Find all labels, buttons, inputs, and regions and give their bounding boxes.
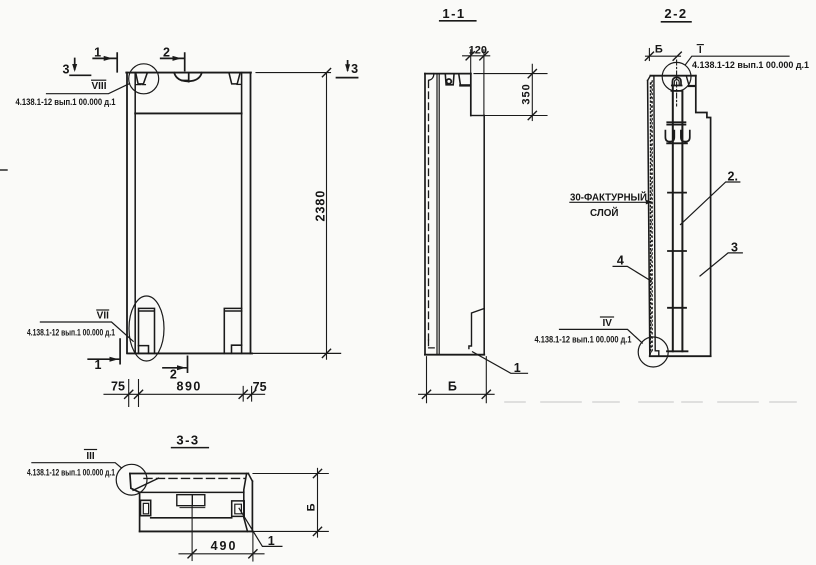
svg-text:4.138.1-12 вып.1 00.000 д.1: 4.138.1-12 вып.1 00.000 д.1 — [27, 328, 115, 338]
svg-text:350: 350 — [521, 83, 533, 104]
svg-text:2-2: 2-2 — [664, 6, 687, 21]
svg-text:490: 490 — [211, 539, 238, 553]
svg-text:I: I — [699, 45, 702, 56]
svg-text:VIII: VIII — [91, 81, 106, 92]
svg-text:75: 75 — [253, 380, 267, 394]
svg-text:3-3: 3-3 — [176, 433, 199, 448]
svg-text:VII: VII — [97, 311, 109, 322]
svg-text:890: 890 — [177, 380, 202, 394]
svg-text:Б: Б — [655, 44, 663, 56]
svg-text:СЛОЙ: СЛОЙ — [590, 206, 619, 219]
svg-text:3: 3 — [351, 62, 358, 76]
svg-text:75: 75 — [111, 380, 125, 394]
svg-text:1: 1 — [268, 534, 275, 548]
svg-text:1-1: 1-1 — [442, 6, 465, 21]
svg-text:4.138.1-12 вып.1 00.000 д.1: 4.138.1-12 вып.1 00.000 д.1 — [692, 60, 809, 70]
svg-text:4.138.1-12 вып.1 00.000 д.1: 4.138.1-12 вып.1 00.000 д.1 — [27, 468, 115, 478]
svg-text:2380: 2380 — [314, 190, 328, 222]
svg-text:1: 1 — [95, 358, 102, 372]
svg-text:Б: Б — [305, 503, 317, 511]
svg-text:4.138.1-12 вып.1 00.000 д.1: 4.138.1-12 вып.1 00.000 д.1 — [535, 335, 632, 345]
svg-text:4.138.1-12 вып.1 00.000 д.1: 4.138.1-12 вып.1 00.000 д.1 — [16, 97, 116, 107]
svg-text:1: 1 — [94, 46, 101, 60]
svg-text:1: 1 — [514, 361, 521, 375]
svg-text:2: 2 — [163, 46, 170, 60]
svg-text:III: III — [86, 451, 95, 462]
svg-text:120: 120 — [469, 44, 487, 56]
svg-text:IV: IV — [602, 318, 612, 329]
svg-text:4: 4 — [617, 254, 624, 268]
svg-text:Б: Б — [448, 380, 457, 394]
svg-text:30-ФАКТУРНЫЙ: 30-ФАКТУРНЫЙ — [570, 190, 647, 203]
svg-text:3: 3 — [63, 63, 70, 77]
